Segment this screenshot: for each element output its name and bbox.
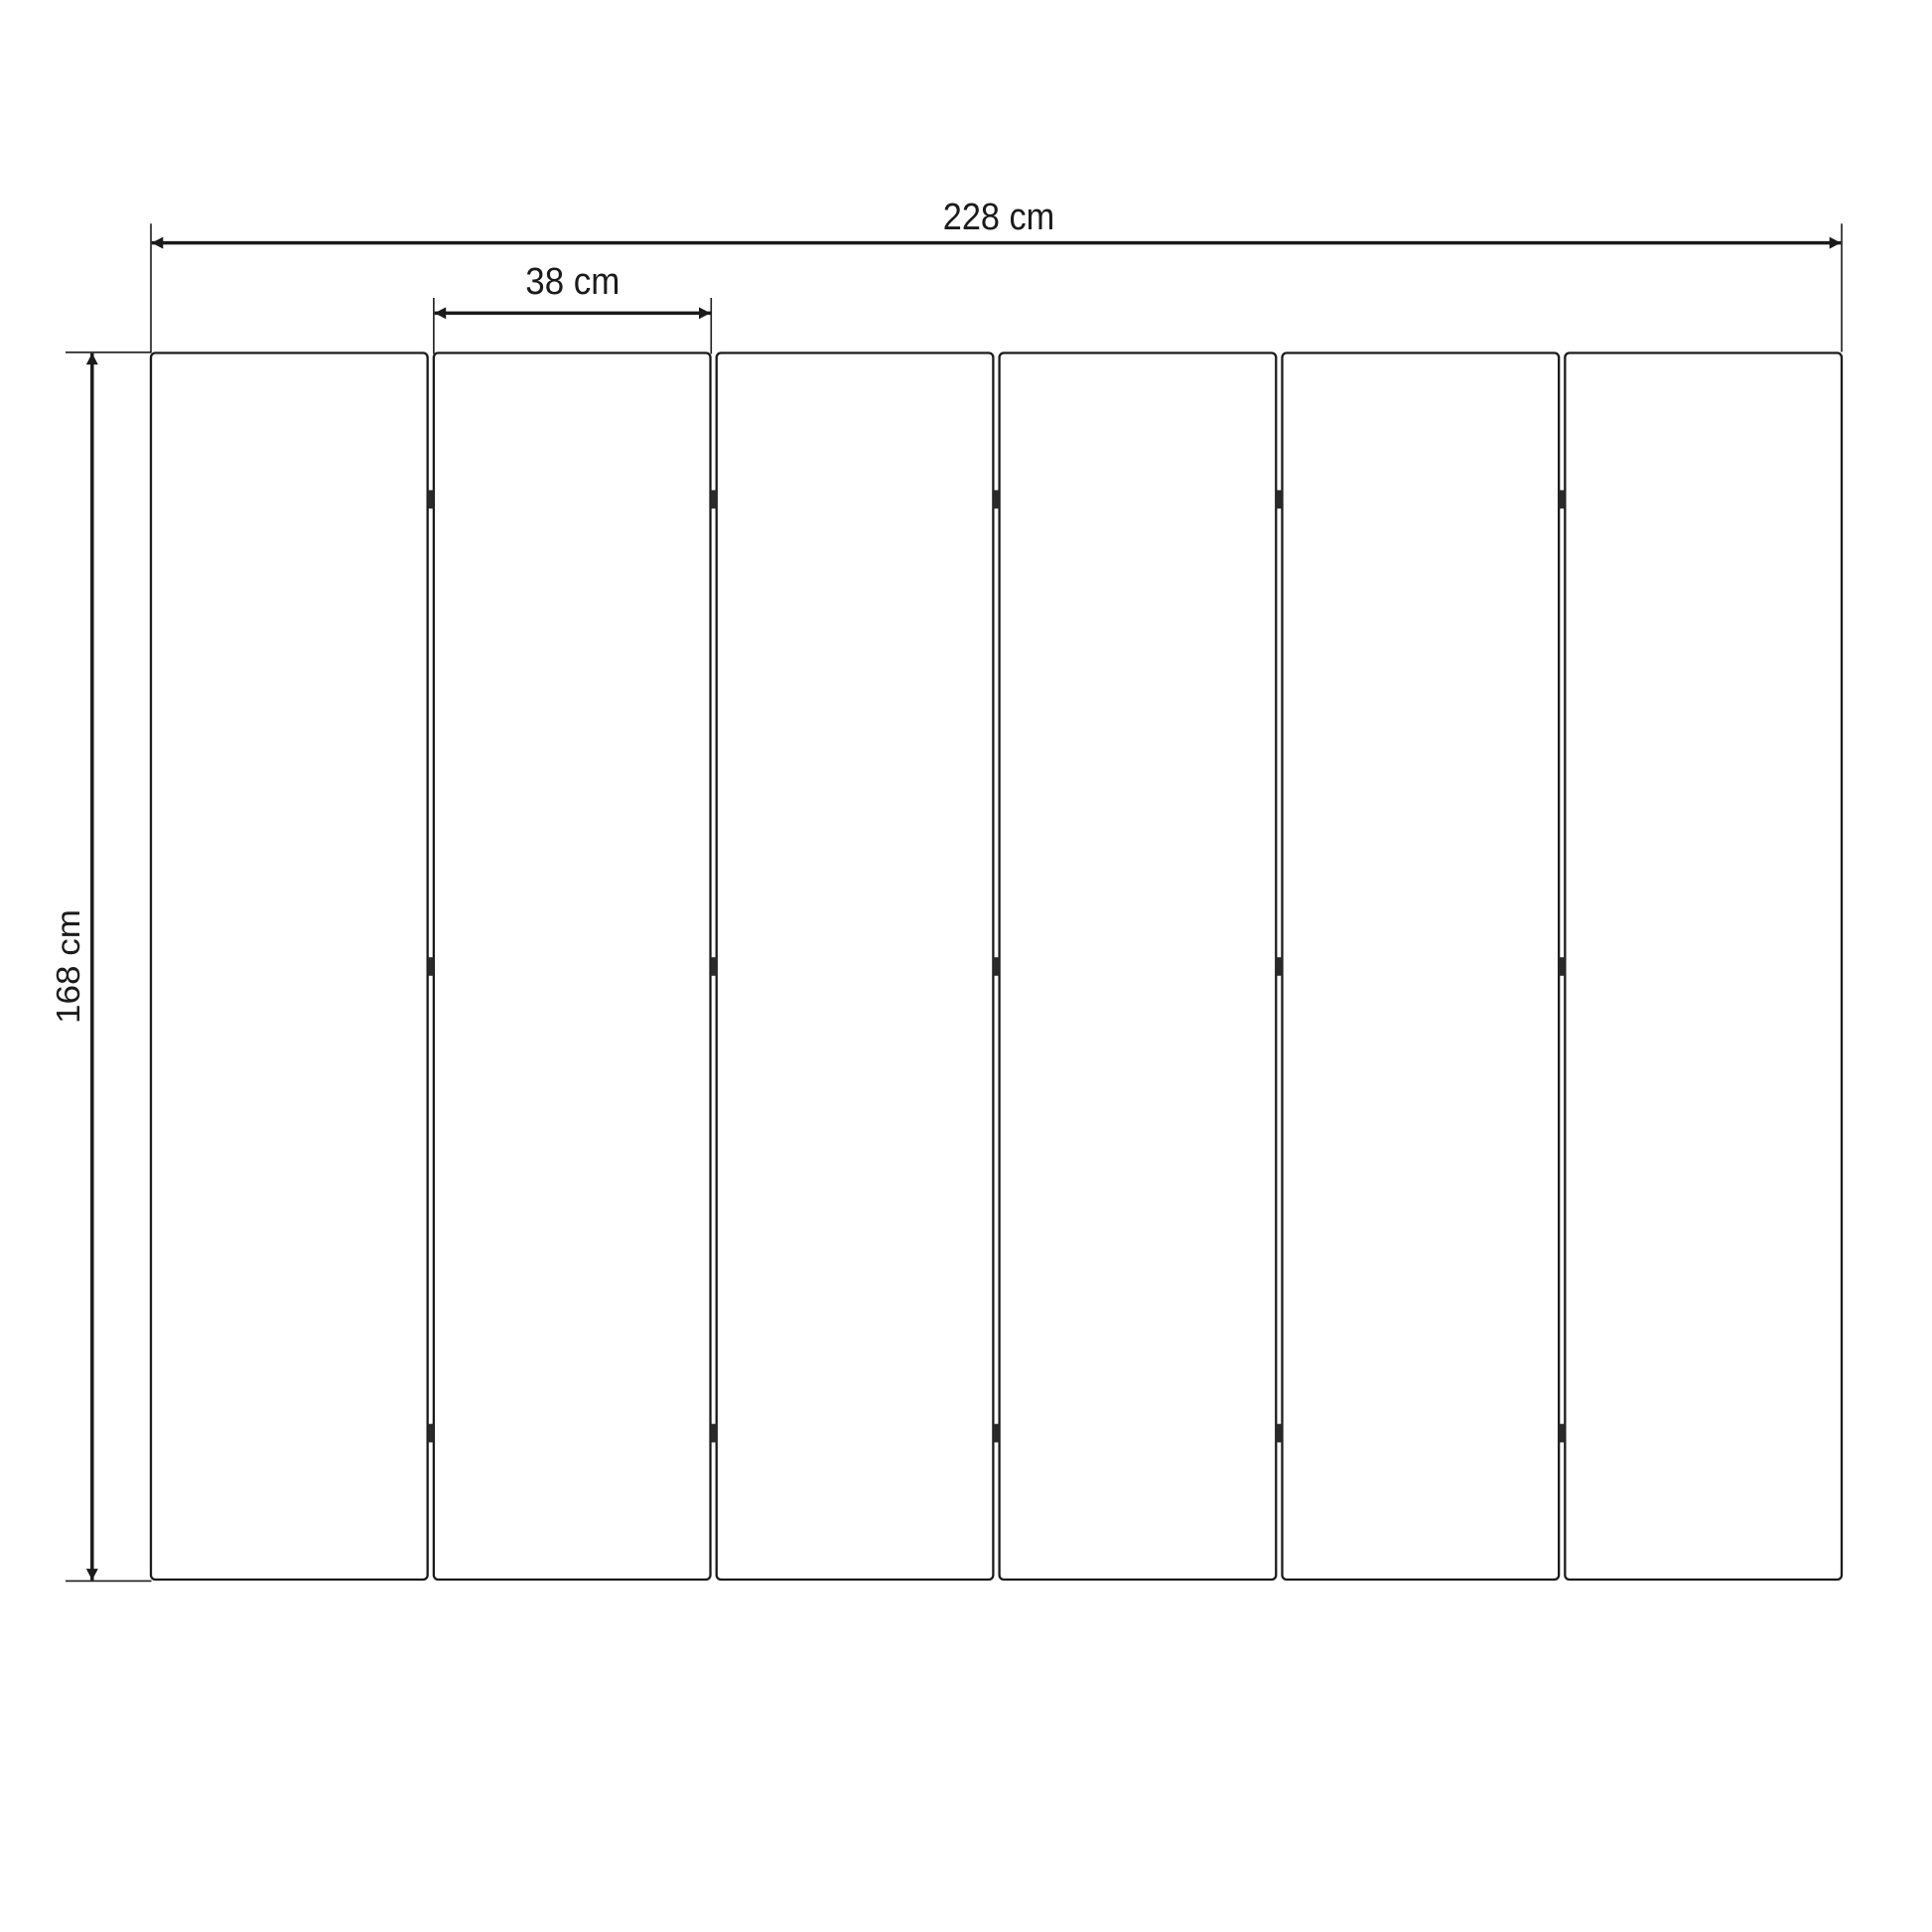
svg-text:38 cm: 38 cm — [525, 260, 620, 303]
svg-text:228 cm: 228 cm — [943, 196, 1055, 238]
svg-text:168 cm: 168 cm — [51, 909, 87, 1024]
